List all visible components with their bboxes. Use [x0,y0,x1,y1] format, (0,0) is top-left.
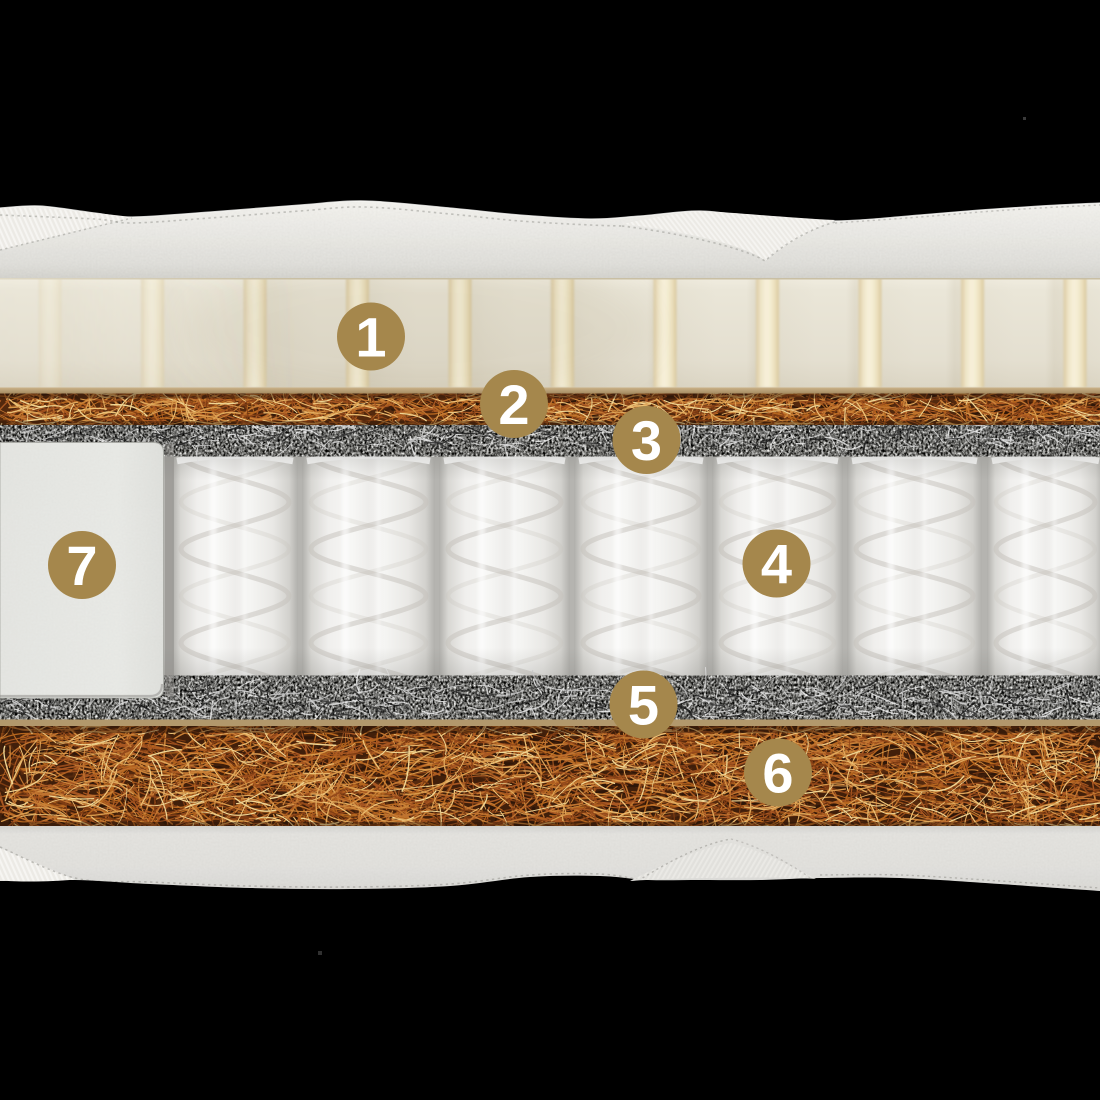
svg-text:3: 3 [631,409,662,472]
svg-text:4: 4 [761,533,792,596]
svg-text:5: 5 [628,674,659,737]
svg-text:7: 7 [66,534,97,597]
svg-text:1: 1 [355,306,386,369]
svg-text:2: 2 [498,373,529,436]
svg-text:6: 6 [762,742,793,805]
